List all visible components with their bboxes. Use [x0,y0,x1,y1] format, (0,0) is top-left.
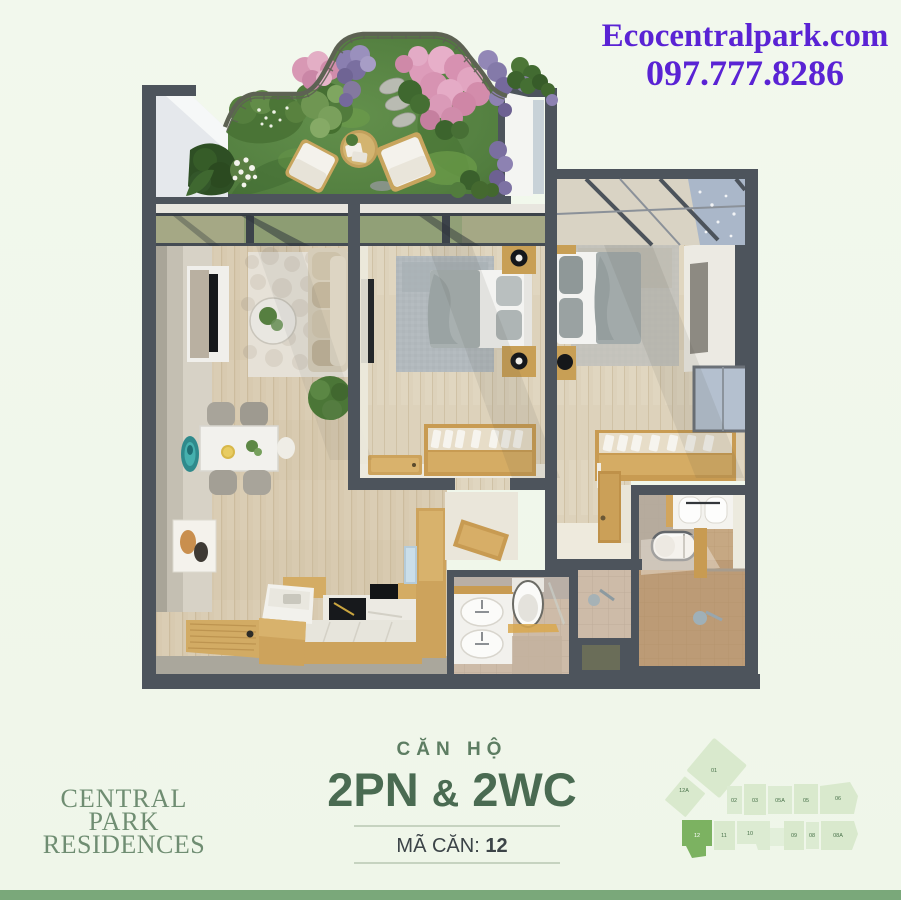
svg-text:10: 10 [747,831,753,837]
svg-text:09: 09 [791,833,797,839]
svg-text:097.777.8286: 097.777.8286 [646,53,844,93]
svg-text:08A: 08A [833,833,843,839]
svg-text:01: 01 [711,768,717,774]
svg-text:06: 06 [835,796,841,802]
svg-text:05A: 05A [775,798,785,804]
svg-text:12: 12 [694,833,700,839]
svg-text:03: 03 [752,798,758,804]
svg-text:11: 11 [721,833,727,839]
svg-text:02: 02 [731,798,737,804]
svg-text:12A: 12A [679,788,689,794]
svg-text:MÃ CĂN: 12: MÃ CĂN: 12 [396,833,507,857]
svg-text:05: 05 [803,798,809,804]
svg-text:RESIDENCES: RESIDENCES [43,830,205,859]
svg-text:CĂN HỘ: CĂN HỘ [397,738,508,760]
svg-text:08: 08 [809,833,815,839]
svg-text:Ecocentralpark.com: Ecocentralpark.com [602,18,889,54]
